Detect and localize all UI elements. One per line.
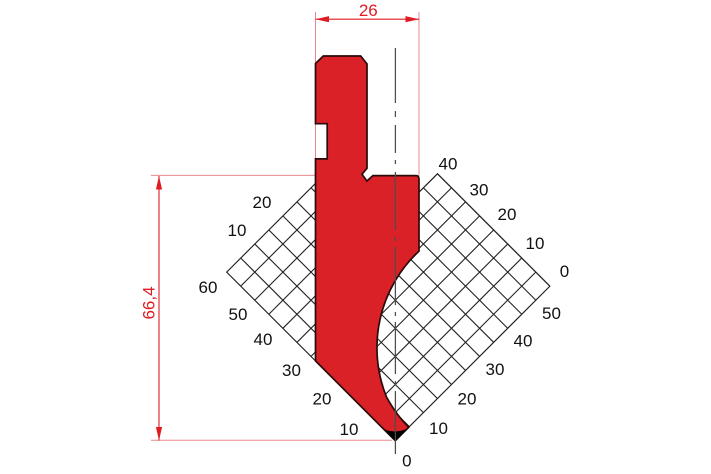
svg-text:50: 50 xyxy=(229,305,248,324)
svg-text:10: 10 xyxy=(340,420,359,439)
svg-text:30: 30 xyxy=(470,180,489,199)
svg-text:20: 20 xyxy=(498,205,517,224)
svg-text:20: 20 xyxy=(458,389,477,408)
svg-text:30: 30 xyxy=(282,361,301,380)
svg-text:40: 40 xyxy=(439,154,458,173)
svg-text:40: 40 xyxy=(254,330,273,349)
svg-text:66,4: 66,4 xyxy=(140,286,159,319)
svg-text:10: 10 xyxy=(429,419,448,438)
svg-text:26: 26 xyxy=(359,1,378,20)
svg-text:40: 40 xyxy=(514,331,533,350)
svg-text:0: 0 xyxy=(402,452,411,471)
svg-text:20: 20 xyxy=(313,389,332,408)
svg-text:0: 0 xyxy=(560,262,569,281)
svg-text:60: 60 xyxy=(199,278,218,297)
svg-text:20: 20 xyxy=(253,193,272,212)
svg-text:10: 10 xyxy=(228,221,247,240)
svg-text:30: 30 xyxy=(486,360,505,379)
svg-text:10: 10 xyxy=(526,234,545,253)
svg-text:50: 50 xyxy=(542,304,561,323)
